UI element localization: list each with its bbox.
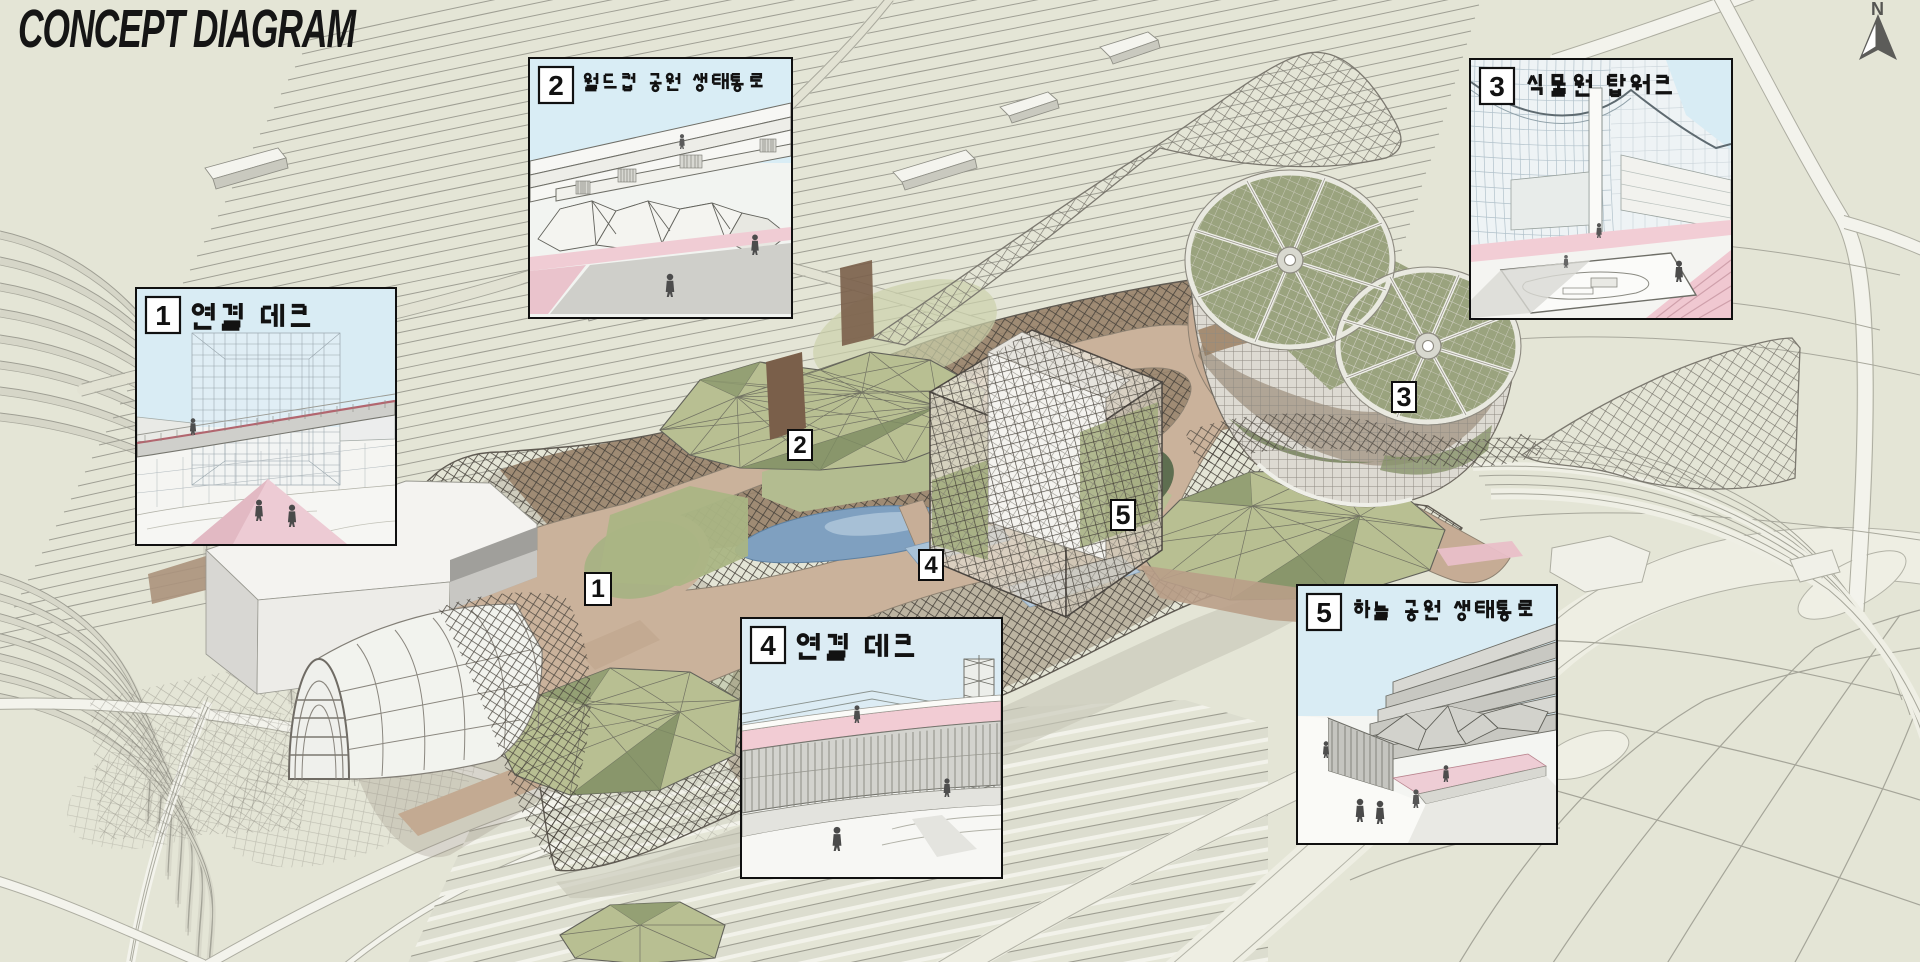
svg-text:4: 4	[760, 630, 776, 661]
svg-text:3: 3	[1489, 71, 1505, 102]
svg-text:1: 1	[155, 300, 171, 331]
svg-text:2: 2	[548, 70, 564, 101]
svg-text:5: 5	[1316, 597, 1332, 628]
